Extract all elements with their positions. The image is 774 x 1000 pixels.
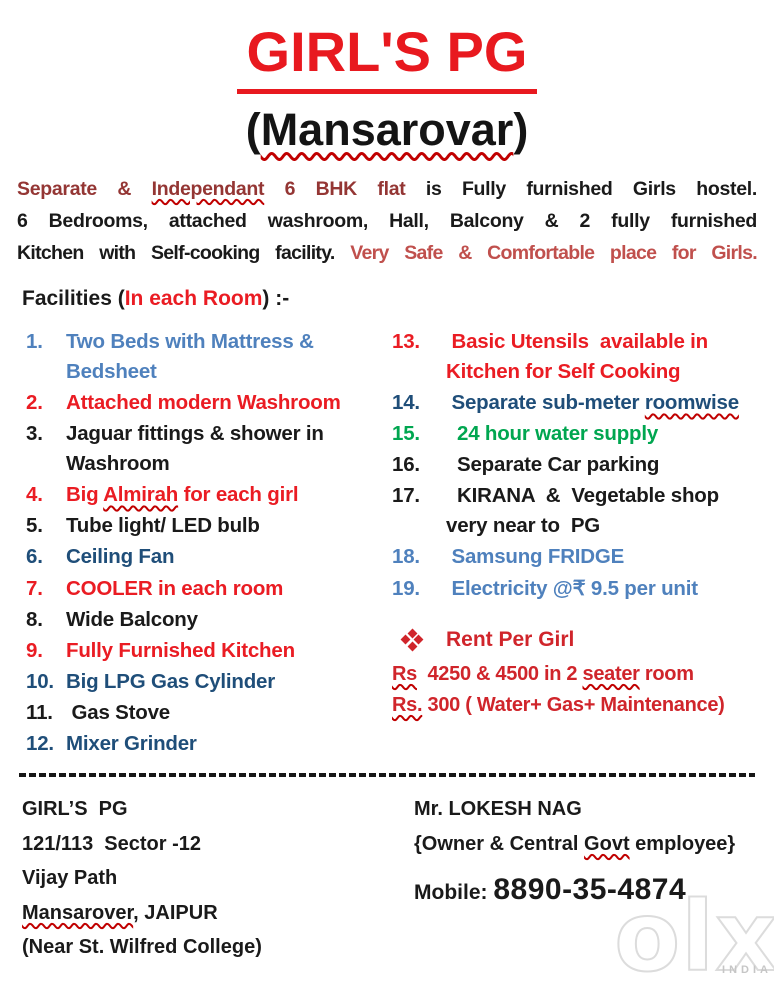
facility-item: 4.Big Almirah for each girl	[26, 480, 392, 510]
page-title-text: GIRL'S PG	[237, 24, 538, 94]
address-line: GIRL’S PG	[22, 792, 414, 826]
misspelled-word: Independant	[152, 178, 265, 200]
facilities-columns: 1.Two Beds with Mattress & Bedsheet2.Att…	[26, 327, 774, 761]
item-number: 18.	[392, 542, 446, 572]
facility-item: 13. Basic Utensils available in Kitchen …	[392, 327, 774, 387]
facility-item: 11. Gas Stove	[26, 698, 392, 728]
facility-item: 10.Big LPG Gas Cylinder	[26, 667, 392, 697]
misspelled-word: Almirah	[103, 483, 178, 506]
text-segment: Electricity @₹ 9.5 per unit	[446, 577, 698, 600]
text-segment: Fully Furnished Kitchen	[66, 639, 295, 662]
facility-item: 15. 24 hour water supply	[392, 419, 774, 449]
subtitle-close-paren: )	[513, 104, 528, 155]
misspelled-word: Rs.	[392, 694, 422, 716]
text-segment: Very Safe & Comfortable place for Girls.	[350, 242, 757, 264]
item-text: Electricity @₹ 9.5 per unit	[446, 574, 698, 604]
pg-advertisement-flyer: { "palette": { "title_red": "#e8191f", "…	[0, 0, 774, 1000]
facilities-heading: Facilities (In each Room) :-	[22, 287, 774, 311]
text-segment: Kitchen with Self-cooking facility.	[17, 242, 350, 264]
text-segment: , JAIPUR	[133, 902, 217, 924]
item-number: 6.	[26, 542, 66, 572]
item-text: Two Beds with Mattress & Bedsheet	[66, 327, 314, 387]
text-segment: is Fully furnished Girls hostel.	[426, 178, 757, 200]
intro-line: Kitchen with Self-cooking facility. Very…	[17, 237, 757, 269]
intro-paragraph: Separate & Independant 6 BHK flat is Ful…	[17, 173, 757, 270]
text-segment: Basic Utensils available in Kitchen for …	[446, 330, 708, 383]
rent-heading-label: Rent Per Girl	[446, 628, 574, 652]
text-segment: Ceiling Fan	[66, 545, 174, 568]
page-title: GIRL'S PG	[0, 24, 774, 94]
text-segment: Mixer Grinder	[66, 732, 197, 755]
contact-name: Mr. LOKESH NAG	[414, 792, 774, 826]
misspelled-word: seater	[583, 663, 640, 685]
rent-section: Rent Per Girl Rs 4250 & 4500 in 2 seater…	[392, 628, 774, 721]
facility-item: 16. Separate Car parking	[392, 450, 774, 480]
item-text: 24 hour water supply	[446, 419, 658, 449]
subtitle-open-paren: (	[246, 104, 261, 155]
page-subtitle: (Mansarovar)	[0, 105, 774, 155]
dashed-divider	[19, 773, 755, 777]
facility-item: 17. KIRANA & Vegetable shop very near to…	[392, 481, 774, 541]
flyer-header: GIRL'S PG (Mansarovar)	[0, 0, 774, 155]
item-text: Jaguar fittings & shower in Washroom	[66, 419, 324, 479]
olx-watermark: olx INDIA	[614, 894, 774, 976]
text-segment: room	[640, 663, 694, 685]
item-number: 8.	[26, 605, 66, 635]
item-number: 10.	[26, 667, 66, 697]
address-line: 121/113 Sector -12	[22, 827, 414, 861]
address-line: Vijay Path	[22, 861, 414, 895]
rent-heading: Rent Per Girl	[392, 628, 774, 652]
four-diamond-bullet-icon	[402, 630, 422, 650]
facility-item: 19. Electricity @₹ 9.5 per unit	[392, 574, 774, 604]
footer-address: GIRL’S PG121/113 Sector -12Vijay PathMan…	[22, 792, 414, 964]
text-segment: Gas Stove	[66, 701, 170, 724]
text-segment: Attached modern Washroom	[66, 391, 341, 414]
intro-line: 6 Bedrooms, attached washroom, Hall, Bal…	[17, 205, 757, 237]
text-segment: (Near St. Wilfred College)	[22, 936, 262, 958]
text-segment: 300 ( Water+ Gas+ Maintenance)	[422, 694, 724, 716]
item-text: Separate sub-meter roomwise	[446, 388, 739, 418]
text-segment: 24 hour water supply	[446, 422, 658, 445]
item-number: 19.	[392, 574, 446, 604]
facility-item: 5.Tube light/ LED bulb	[26, 511, 392, 541]
text-segment: Vijay Path	[22, 867, 117, 889]
item-text: KIRANA & Vegetable shop very near to PG	[446, 481, 719, 541]
text-segment: Wide Balcony	[66, 608, 198, 631]
item-text: Fully Furnished Kitchen	[66, 636, 295, 666]
item-number: 17.	[392, 481, 446, 541]
facilities-list-right: 13. Basic Utensils available in Kitchen …	[392, 327, 774, 721]
text-segment: employee}	[630, 833, 736, 855]
text-segment: 6 BHK flat	[264, 178, 426, 200]
text-segment: Big	[66, 483, 103, 506]
facilities-list-left: 1.Two Beds with Mattress & Bedsheet2.Att…	[26, 327, 392, 761]
text-segment: 6 Bedrooms, attached washroom, Hall, Bal…	[17, 210, 757, 232]
item-text: Ceiling Fan	[66, 542, 174, 572]
subtitle-locality: Mansarovar	[261, 104, 514, 155]
text-segment: GIRL’S PG	[22, 798, 128, 820]
text-segment: Separate sub-meter	[446, 391, 645, 414]
item-text: Samsung FRIDGE	[446, 542, 624, 572]
text-segment: {Owner & Central	[414, 833, 584, 855]
item-text: Attached modern Washroom	[66, 388, 341, 418]
text-segment: In each Room	[125, 287, 263, 310]
item-text: Basic Utensils available in Kitchen for …	[446, 327, 708, 387]
facilities-list-right-items: 13. Basic Utensils available in Kitchen …	[392, 327, 774, 604]
facility-item: 7.COOLER in each room	[26, 574, 392, 604]
rent-line-2: Rs. 300 ( Water+ Gas+ Maintenance)	[392, 690, 774, 721]
item-number: 1.	[26, 327, 66, 387]
facility-item: 14. Separate sub-meter roomwise	[392, 388, 774, 418]
misspelled-word: Mansarover	[22, 902, 133, 924]
item-text: Big LPG Gas Cylinder	[66, 667, 275, 697]
facility-item: 9.Fully Furnished Kitchen	[26, 636, 392, 666]
text-segment: ) :-	[262, 287, 289, 310]
facility-item: 3.Jaguar fittings & shower in Washroom	[26, 419, 392, 479]
item-text: Wide Balcony	[66, 605, 198, 635]
text-segment: Two Beds with Mattress & Bedsheet	[66, 330, 314, 383]
item-number: 14.	[392, 388, 446, 418]
item-text: Tube light/ LED bulb	[66, 511, 260, 541]
item-number: 9.	[26, 636, 66, 666]
misspelled-word: Rs	[392, 663, 417, 685]
item-number: 16.	[392, 450, 446, 480]
address-line: (Near St. Wilfred College)	[22, 930, 414, 964]
text-segment: Jaguar fittings & shower in Washroom	[66, 422, 324, 475]
text-segment: Separate &	[17, 178, 152, 200]
item-number: 12.	[26, 729, 66, 759]
text-segment: KIRANA & Vegetable shop very near to PG	[446, 484, 719, 537]
item-number: 7.	[26, 574, 66, 604]
intro-line: Separate & Independant 6 BHK flat is Ful…	[17, 173, 757, 205]
facility-item: 8.Wide Balcony	[26, 605, 392, 635]
item-number: 2.	[26, 388, 66, 418]
misspelled-word: roomwise	[645, 391, 739, 414]
flyer-page: GIRL'S PG (Mansarovar) Separate & Indepe…	[0, 0, 774, 1000]
facility-item: 18. Samsung FRIDGE	[392, 542, 774, 572]
facility-item: 1.Two Beds with Mattress & Bedsheet	[26, 327, 392, 387]
item-text: Separate Car parking	[446, 450, 659, 480]
text-segment: Tube light/ LED bulb	[66, 514, 260, 537]
misspelled-word: Govt	[584, 833, 630, 855]
item-number: 13.	[392, 327, 446, 387]
text-segment: COOLER in each room	[66, 577, 283, 600]
text-segment: for each girl	[178, 483, 298, 506]
text-segment: Facilities (	[22, 287, 125, 310]
rent-line-1: Rs 4250 & 4500 in 2 seater room	[392, 659, 774, 690]
item-text: Big Almirah for each girl	[66, 480, 298, 510]
item-text: COOLER in each room	[66, 574, 283, 604]
item-number: 4.	[26, 480, 66, 510]
text-segment: 4250 & 4500 in 2	[417, 663, 583, 685]
text-segment: Samsung FRIDGE	[446, 545, 624, 568]
text-segment: Separate Car parking	[446, 453, 659, 476]
facility-item: 12.Mixer Grinder	[26, 729, 392, 759]
item-number: 3.	[26, 419, 66, 479]
facility-item: 6.Ceiling Fan	[26, 542, 392, 572]
item-number: 5.	[26, 511, 66, 541]
facility-item: 2.Attached modern Washroom	[26, 388, 392, 418]
contact-role: {Owner & Central Govt employee}	[414, 827, 774, 861]
address-line: Mansarover, JAIPUR	[22, 896, 414, 930]
text-segment: 121/113 Sector -12	[22, 833, 201, 855]
text-segment: Big LPG Gas Cylinder	[66, 670, 275, 693]
text-segment: Mobile:	[414, 881, 493, 904]
item-text: Mixer Grinder	[66, 729, 197, 759]
item-number: 15.	[392, 419, 446, 449]
item-number: 11.	[26, 698, 66, 728]
item-text: Gas Stove	[66, 698, 170, 728]
